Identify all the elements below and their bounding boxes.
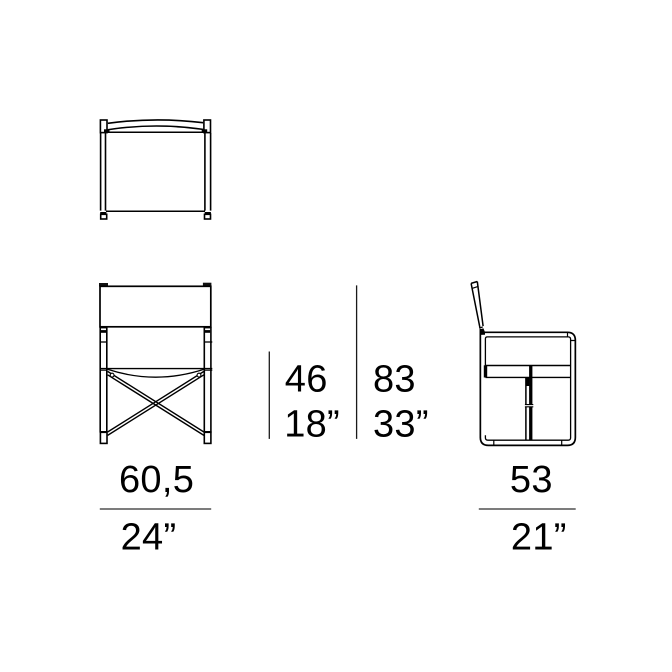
svg-text:24”: 24” xyxy=(121,516,177,558)
svg-text:33”: 33” xyxy=(373,403,429,445)
svg-text:46: 46 xyxy=(285,359,328,401)
svg-text:21”: 21” xyxy=(511,516,567,558)
svg-text:60,5: 60,5 xyxy=(119,459,194,501)
svg-text:83: 83 xyxy=(373,359,416,401)
svg-text:18”: 18” xyxy=(284,403,340,445)
svg-text:53: 53 xyxy=(510,459,553,501)
